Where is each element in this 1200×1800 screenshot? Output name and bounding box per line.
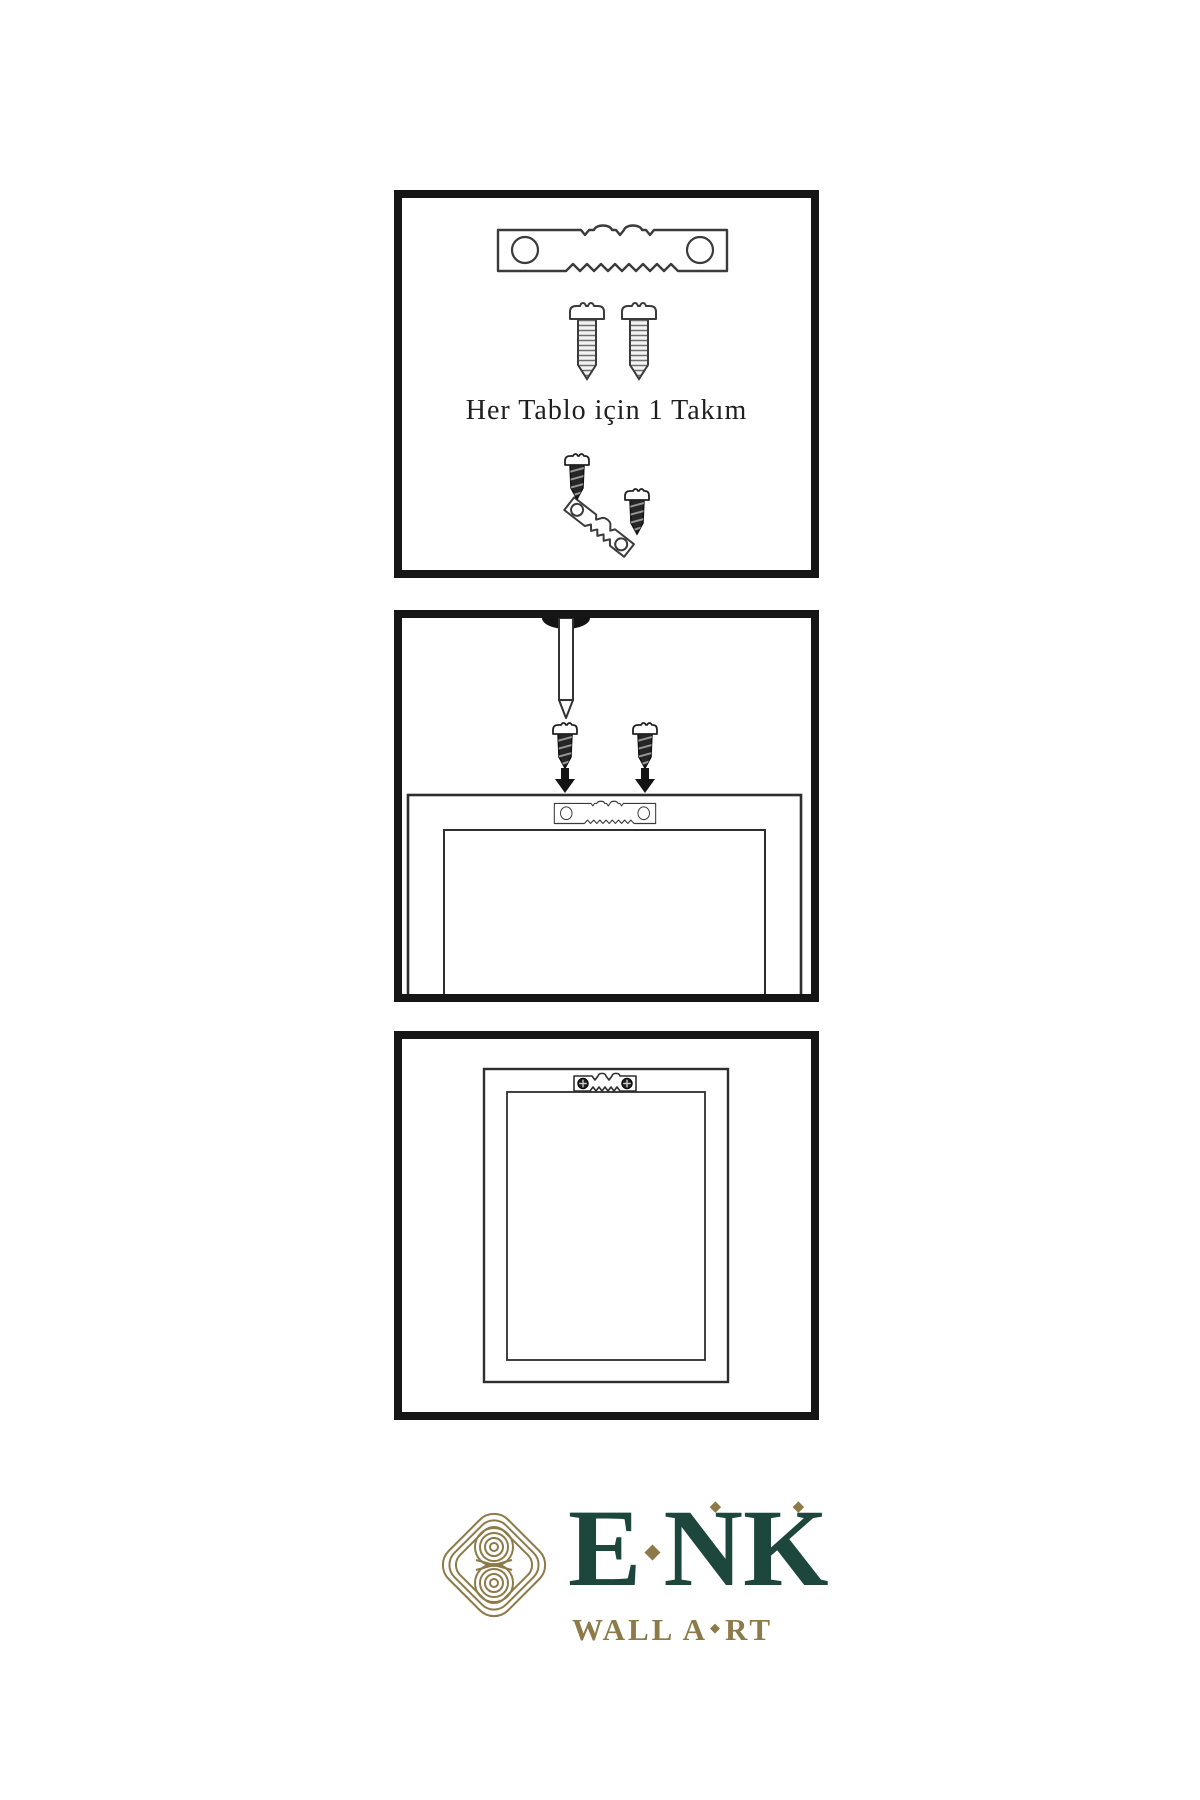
screw-icon	[633, 723, 657, 768]
screw-icon	[570, 303, 604, 379]
diamond-icon: ◆	[644, 1541, 660, 1562]
screw-into-hanger-icon	[564, 454, 649, 557]
hung-frame-illustration	[402, 1039, 811, 1412]
arrow-down-icon	[555, 768, 575, 793]
subtitle-right: RT	[725, 1612, 773, 1648]
brand-logo: E ◆ ◆ N ◆ K WALL A ◆ RT	[438, 1500, 829, 1648]
logo-text: E ◆ ◆ N ◆ K WALL A ◆ RT	[568, 1493, 829, 1648]
enk-knot-logo-icon	[438, 1503, 550, 1627]
nail-icon	[542, 618, 590, 718]
instruction-sheet: Her Tablo için 1 Takım	[0, 0, 1200, 1800]
step-2-panel	[394, 610, 819, 1002]
sawtooth-hanger-icon	[498, 226, 727, 272]
subtitle-left: WALL A	[572, 1612, 708, 1648]
brand-letter: ◆ N	[664, 1493, 743, 1603]
diamond-icon: ◆	[710, 1499, 722, 1514]
step-1-panel: Her Tablo için 1 Takım	[394, 190, 819, 578]
screw-icon	[553, 723, 577, 768]
framed-picture-icon	[484, 1069, 728, 1382]
diamond-icon: ◆	[710, 1622, 723, 1635]
screw-icon	[622, 303, 656, 379]
diamond-icon: ◆	[793, 1499, 805, 1514]
mounting-illustration	[402, 618, 811, 994]
brand-letter: ◆ K	[743, 1493, 829, 1603]
brand-letter-k: K	[743, 1487, 829, 1609]
brand-wordmark: E ◆ ◆ N ◆ K	[568, 1493, 829, 1603]
sawtooth-hanger-icon	[554, 801, 655, 823]
brand-subtitle: WALL A ◆ RT	[572, 1612, 829, 1648]
brand-letter: E	[568, 1493, 641, 1603]
brand-letter-n: N	[664, 1487, 743, 1609]
brand-letter-e: E	[568, 1487, 641, 1609]
kit-contents-illustration	[402, 198, 811, 570]
frame-back-icon	[408, 795, 801, 994]
kit-caption: Her Tablo için 1 Takım	[402, 395, 811, 427]
step-3-panel	[394, 1031, 819, 1420]
arrow-down-icon	[635, 768, 655, 793]
